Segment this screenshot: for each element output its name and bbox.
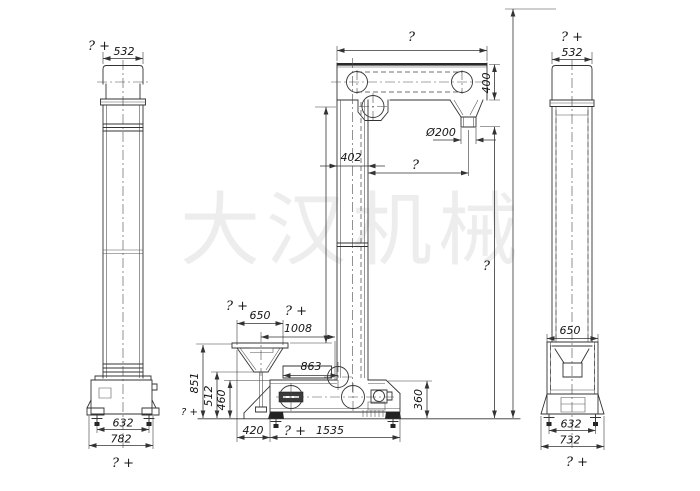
dim-hopper-height: 851 [188,373,201,394]
dim-right-top-note: ? + [561,30,583,45]
dim-hopper-lip-height: 512 [202,386,215,407]
dim-left-top-width: 532 [114,45,135,58]
dim-offset-note: ? + [285,304,307,319]
dim-right-top-width: 532 [562,46,583,59]
dim-ground-note: ? + [181,407,198,418]
dim-right-hopper-width: 650 [560,324,581,337]
dim-left-bottom-note: ? + [112,456,134,471]
dim-hopper-width: 650 [250,309,271,322]
dim-hopper-to-boot: 420 [243,424,264,437]
watermark-text: 大汉机械 [180,184,524,277]
dim-boot-span: 1535 [316,424,344,437]
dim-left-bolt-span: 632 [113,417,134,430]
dim-head-height: 400 [480,73,493,94]
right-side-view: ? + 532 650 632 732 [541,30,604,470]
dim-right-base-width: 732 [560,434,581,447]
technical-drawing: 大汉机械 ? + 532 632 [0,0,700,491]
dim-right-bolt-span: 632 [561,418,582,431]
dim-right-bottom-note: ? + [566,455,588,470]
dim-boot-height: 360 [412,389,425,410]
dim-column-width: 402 [341,151,362,164]
dim-discharge-height-note: ? [483,259,491,274]
dim-spout-diameter: Ø200 [425,126,456,139]
dim-left-base-width: 782 [111,433,132,446]
watermark: 大汉机械 [180,184,524,277]
dim-hopper-note: ? + [226,299,248,314]
dim-boot-inlet-height: 460 [215,390,228,411]
dim-inlet-length: 863 [301,360,322,373]
dim-boot-span-note: ? + [284,424,306,439]
dim-left-top-note: ? + [88,39,110,54]
dim-spout-offset-note: ? [412,158,420,173]
left-side-view: ? + 532 632 782 ? + [87,39,159,471]
dim-head-width-note: ? [408,30,416,45]
dim-hopper-offset: 1008 [284,322,312,335]
